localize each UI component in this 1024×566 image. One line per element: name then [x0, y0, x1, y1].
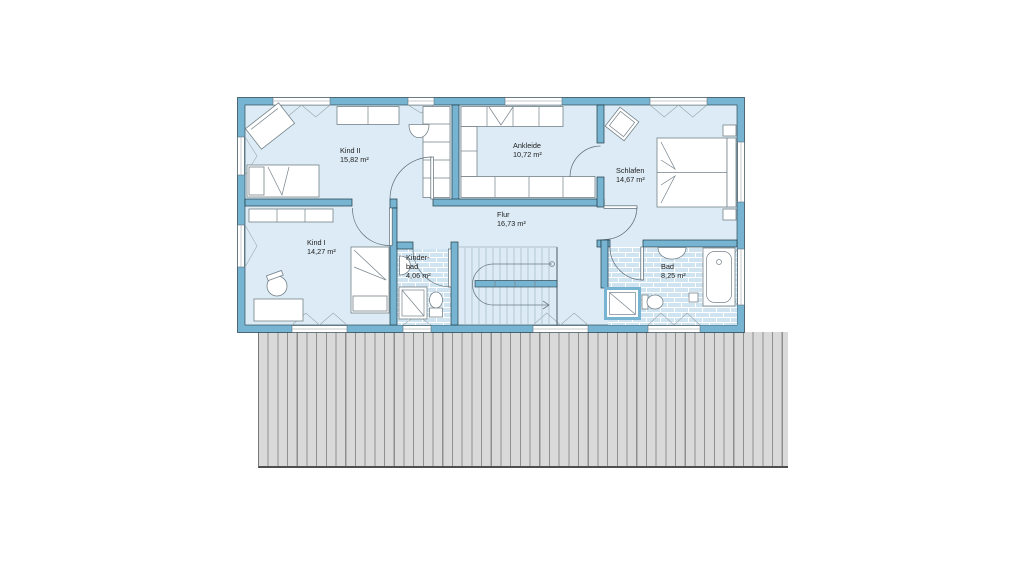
toilet [647, 295, 663, 309]
room-area: 4,06 m² [406, 272, 431, 281]
kinderbad-door-leaf [448, 249, 451, 287]
cabinet [423, 107, 450, 198]
room-label-kind-ii: Kind II 15,82 m² [340, 147, 369, 165]
pillow [353, 296, 387, 311]
floorplan-canvas: Kind II 15,82 m² Ankleide 10,72 m² Schla… [0, 0, 1024, 566]
room-area: 14,27 m² [307, 248, 336, 257]
room-area: 14,67 m² [616, 176, 645, 185]
roof-hatch-area [258, 332, 788, 468]
headboard [727, 138, 736, 207]
shelf [249, 209, 333, 222]
room-label-schlafen: Schlafen 14,67 m² [616, 167, 645, 185]
wardrobe-left [461, 127, 477, 177]
room-area: 8,25 m² [661, 272, 686, 281]
wardrobe-bottom [461, 177, 595, 198]
schlafen-door-leaf [604, 206, 637, 209]
room-area: 16,73 m² [497, 220, 526, 229]
nightstand [723, 209, 736, 220]
room-label-ankleide: Ankleide 10,72 m² [513, 142, 542, 160]
room-label-flur: Flur 16,73 m² [497, 211, 526, 229]
bathtub [703, 248, 735, 306]
bad-door-leaf [641, 247, 644, 280]
room-area: 15,82 m² [340, 156, 369, 165]
nightstand [723, 125, 736, 136]
room-label-bad: Bad 8,25 m² [661, 263, 686, 281]
kind-i-door-leaf [389, 208, 392, 246]
toilet [430, 292, 443, 308]
room-label-kind-i: Kind I 14,27 m² [307, 239, 336, 257]
floorplan-drawing [237, 97, 745, 333]
toilet-tank [430, 308, 443, 317]
wardrobe-top [461, 107, 563, 127]
kind-ii-door-leaf [431, 157, 434, 199]
room-name: Kinder- bad [406, 254, 431, 272]
room-area: 10,72 m² [513, 151, 542, 160]
pillow [249, 167, 264, 195]
stair-railing [475, 281, 557, 288]
desk [254, 299, 303, 321]
room-label-kinderbad: Kinder- bad 4,06 m² [406, 254, 431, 280]
floor-drain [689, 293, 698, 302]
